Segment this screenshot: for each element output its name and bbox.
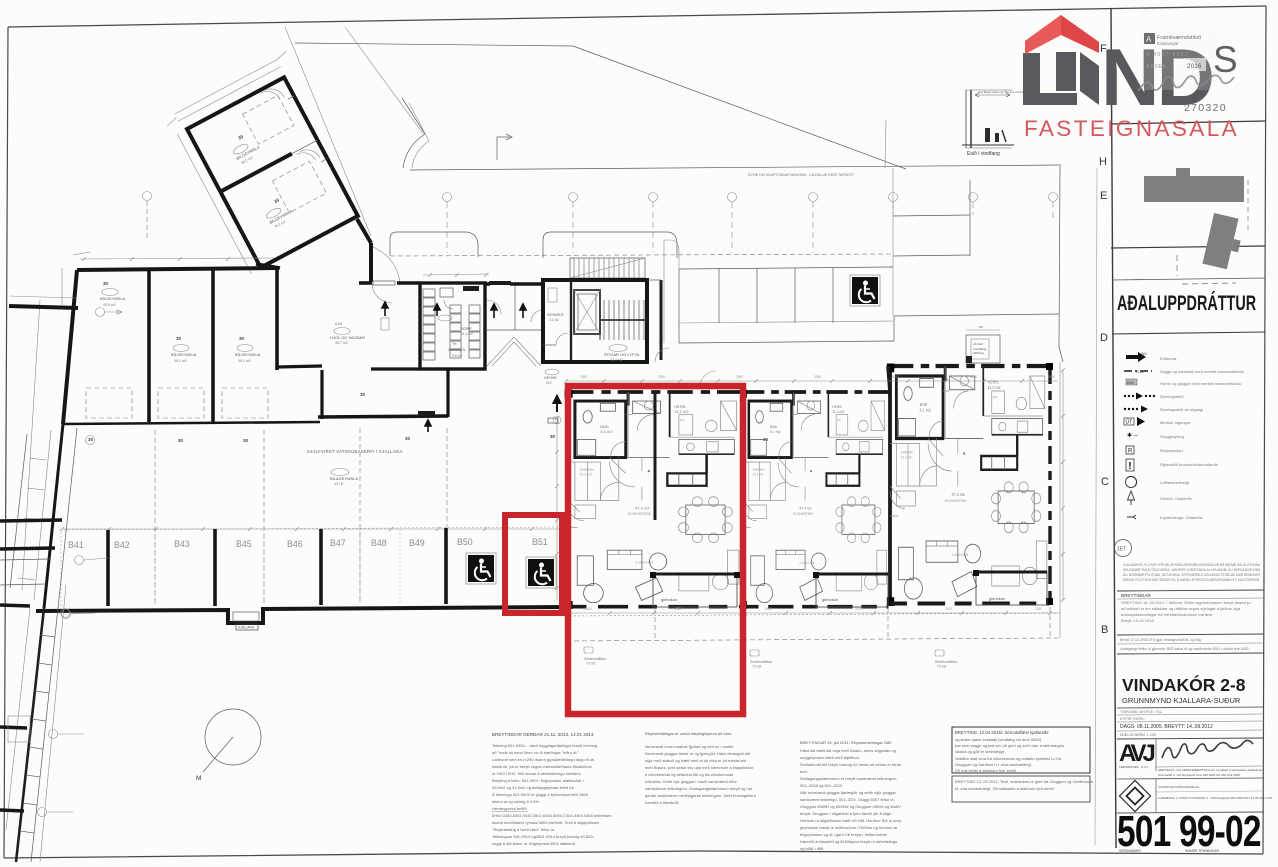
svg-text:samkvæmt teikningu. 501–320í.: samkvæmt teikningu. 501–320í. Gluggi 600… [800, 797, 895, 802]
svg-text:breytt. Gluggum í stigahlúsi á: breytt. Gluggum í stigahlúsi á fyrtu hæð… [800, 811, 892, 816]
svg-text:þar sem veggir og þak eru úð g: þar sem veggir og þak eru úð gleri og sv… [955, 743, 1065, 748]
svg-text:75 m2: 75 m2 [937, 665, 947, 669]
svg-text:270320: 270320 [1184, 102, 1227, 114]
svg-text:burt.: burt. [800, 769, 808, 774]
svg-text:BÍLAGEYMSLA: BÍLAGEYMSLA [330, 476, 358, 481]
svg-text:Veggir og hæðaskil með merktri: Veggir og hæðaskil með merktri brunamóts… [1160, 369, 1244, 374]
svg-text:að "undir uti kemi 2mm vír í8: að "undir uti kemi 2mm vír í8 hæðingar "… [492, 750, 580, 755]
svg-text:geymslum breytt úr stöltúurðum: geymslum breytt úr stöltúurðum í ÍSnfður… [800, 825, 898, 830]
svg-text:2590: 2590 [580, 375, 587, 379]
svg-text:E: E [1100, 190, 1107, 202]
svg-text:30: 30 [550, 434, 556, 439]
svg-text:Sérafnotaflötur: Sérafnotaflötur [750, 660, 773, 664]
svg-text:HELGAVARP RAUS ÓKLE MÚRA, VANT: HELGAVARP RAUS ÓKLE MÚRA, VANTERS VORSTU… [1123, 567, 1261, 572]
svg-text:Undirganga fellur úr gjónverk: Undirganga fellur úr gjónverk 0002 áskar… [1120, 646, 1249, 651]
svg-text:Gluggum og Garðhús h.f. eða sa: Gluggum og Garðhús h.f. eða sambærilegt. [955, 762, 1032, 767]
svg-text:30: 30 [243, 438, 249, 443]
svg-text:B51: B51 [532, 537, 548, 547]
svg-text:30: 30 [176, 336, 182, 341]
svg-text:Reynsteðalingar er varða hæpin: Reynsteðalingar er varða hæpinghlýsum að… [645, 731, 732, 736]
svg-text:og td56 í ít88.: og td56 í ít88. [800, 846, 824, 851]
svg-text:Rýmingarleið.: Rýmingarleið. [1160, 394, 1184, 399]
svg-text:4 6 FEB: 4 6 FEB [1146, 64, 1166, 70]
svg-text:BÍLGEYMSLA: BÍLGEYMSLA [235, 352, 261, 357]
svg-text:B41: B41 [68, 540, 84, 550]
svg-text:gerður samkvæmt meðfylgjandi t: gerður samkvæmt meðfylgjandi teikningum.… [645, 793, 757, 798]
svg-text:Reykskynjari.: Reykskynjari. [1160, 448, 1184, 453]
svg-text:Gluggum 60ð5H og 60ð5W og Glug: Gluggum 60ð5H og 60ð5W og Gluggum 050ð4 … [800, 804, 901, 809]
svg-text:veggi á í68 teknir út. Bílgeym: veggi á í68 teknir út. Bílgeymsla 0004 s… [492, 841, 576, 846]
svg-text:BÍLGEYMSLA: BÍLGEYMSLA [171, 352, 197, 357]
svg-text:Teikning 501-9900----ítarð byg: Teikning 501-9900----ítarð byggingarfjár… [492, 743, 597, 748]
svg-text:43 LR: 43 LR [334, 482, 344, 486]
svg-text:handrið á tilsettuðli.: handrið á tilsettuðli. [645, 800, 679, 805]
svg-text:EI-60: EI-60 [1136, 370, 1144, 374]
svg-text:23.4 m2: 23.4 m2 [610, 358, 623, 362]
svg-text:1ET: 1ET [1117, 547, 1126, 553]
svg-text:5400: 5400 [765, 607, 772, 611]
svg-text:2590: 2590 [736, 375, 743, 379]
svg-text:MÆLIKVARÐI 1:100: MÆLIKVARÐI 1:100 [1120, 732, 1157, 737]
svg-text:BREYTINGAR GERÐAR 21.11. 2013,: BREYTINGAR GERÐAR 21.11. 2013, 14.01 201… [492, 732, 594, 737]
svg-text:BREYTING: 12.04 2015í: Sérnota: BREYTING: 12.04 2015í: Sérnotaflætir kja… [955, 730, 1050, 735]
svg-text:45.8 m2: 45.8 m2 [103, 303, 116, 307]
svg-text:GLF: GLF [546, 381, 552, 385]
svg-text:Öryggislýsing.: Öryggislýsing. [1160, 434, 1185, 439]
svg-text:3280: 3280 [1048, 375, 1055, 379]
svg-text:Teikningum 501-9913 og0501-991: Teikningum 501-9913 og0501-9914 breytt þ… [492, 834, 595, 839]
svg-text:Hersteypunni beðið:: Hersteypunni beðið: [492, 806, 528, 811]
svg-text:Merktur útgangur.: Merktur útgangur. [1160, 420, 1191, 425]
svg-text:B47: B47 [330, 538, 346, 548]
svg-text:3.1 m2: 3.1 m2 [549, 318, 559, 322]
svg-text:glerlokun: glerlokun [989, 596, 1005, 601]
svg-text:2410: 2410 [855, 607, 862, 611]
svg-text:VONISKOR ÞRÓUNARFÉLAG: VONISKOR ÞRÓUNARFÉLAG [1158, 784, 1200, 789]
svg-text:Esið í vindfang: Esið í vindfang [967, 150, 1000, 157]
svg-text:Eðlisinna.: Eðlisinna. [1160, 356, 1177, 361]
svg-text:D: D [1100, 332, 1108, 344]
svg-text:30: 30 [178, 438, 184, 443]
svg-text:F: F [1100, 43, 1107, 55]
svg-text:Þrýstunlengd. Úðakerfis: Þrýstunlengd. Úðakerfis [1160, 515, 1202, 520]
svg-text:Hólmaslóð 4. 101 Reykjavík: Hólmaslóð 4. 101 Reykjavík Sími 496 5281… [1158, 772, 1240, 777]
svg-text:AVJ: AVJ [1119, 740, 1155, 767]
svg-text:35.1 m2: 35.1 m2 [174, 359, 187, 363]
svg-text:M: M [196, 775, 201, 782]
svg-text:tekinn út og steinig 8 0.9%.: tekinn út og steinig 8 0.9%. [492, 799, 540, 804]
svg-text:B 4557-9962: B 4557-9962 [1146, 52, 1189, 58]
svg-text:B49: B49 [409, 538, 425, 548]
svg-text:2590: 2590 [658, 375, 665, 379]
svg-text:Breytt: 12.04 2015.: Breytt: 12.04 2015. [1121, 618, 1155, 623]
svg-text:ÞARABAKKI 3. SAMÞYKKTARMÁL 4 -: ÞARABAKKI 3. SAMÞYKKTARMÁL 4 - 109 Reykj… [1158, 796, 1272, 800]
svg-text:eðluslíks. Settir nýir glugga: eðluslíks. Settir nýir gluggar í húsið s… [645, 779, 737, 784]
svg-text:73 m2: 73 m2 [586, 662, 596, 666]
svg-text:ÚLI NOSEMAR PLOTUNA, SETJA SKA: ÚLI NOSEMAR PLOTUNA, SETJA SKAL SÓTFHÆRS… [1123, 572, 1260, 577]
svg-text:ARKITEKTA- OG VERKFRÆÐISTOFA e: ARKITEKTA- OG VERKFRÆÐISTOFA ehf. Lynghá… [1158, 767, 1262, 772]
svg-text:GRUNNMYND KJALLARA-SUÐUR: GRUNNMYND KJALLARA-SUÐUR [1122, 696, 1241, 705]
svg-text:Svölukendð tilð breytt Þannig: Svölukendð tilð breytt Þannig úð henta ú… [800, 762, 902, 767]
svg-text:5400: 5400 [585, 607, 592, 611]
svg-text:SORP: SORP [461, 327, 472, 331]
svg-text:BÍLGEYMSLA: BÍLGEYMSLA [100, 296, 126, 301]
svg-text:að teiknað er inn stálskáar og: að teiknað er inn stálskáar og útlitiðar… [1121, 606, 1241, 611]
svg-text:úr OK3 Í 0H2. 5ðli mónar 8 sér: úr OK3 Í 0H2. 5ðli mónar 8 sérstaklerngu… [492, 771, 582, 776]
svg-text:B50: B50 [457, 537, 473, 547]
svg-text:BREYTING 13. 03 2012: Texti,: BREYTING 13. 03 2012: Texti, svalalokun … [955, 779, 1094, 784]
svg-text:Hálst allt klætt allt núja með: Hálst allt klætt allt núja með Álraun, s… [800, 748, 896, 753]
svg-text:TH: TH [452, 342, 457, 346]
svg-text:BREYTINGAR: BREYTINGAR [1121, 593, 1152, 598]
svg-text:"Reykræsting á hvert hæð" fell: "Reykræsting á hvert hæð" fellur út. [492, 827, 555, 832]
svg-text:TEIKNAÐ: AH.FLE / GL: TEIKNAÐ: AH.FLE / GL [1120, 709, 1163, 714]
svg-text:+8 GLF: +8 GLF [973, 342, 983, 346]
svg-text:GREYTING 14. 09.2012: Í íbðúu: GREYTING 14. 09.2012: Í íbðúum, 305m og(… [1121, 600, 1252, 605]
svg-text:Hurðir og gluggar með merktri: Hurðir og gluggar með merktri brunamótst… [1160, 381, 1241, 386]
svg-text:35.1 m2: 35.1 m2 [238, 359, 251, 363]
svg-text:INN: INN [1141, 352, 1147, 356]
svg-text:Á teikningu 501-9902 er gluggi: Á teikningu 501-9902 er gluggi á Þjölver… [492, 792, 589, 797]
svg-text:nýja með stakuð og klætt með á: nýja með stakuð og klætt með ál úð blíta… [645, 758, 746, 763]
svg-text:30: 30 [88, 437, 94, 442]
svg-text:Úðstöð. Úðakerfis: Úðstöð. Úðakerfis [1160, 496, 1192, 501]
svg-text:43,9m2 og 41,9m2 og dekkjageym: 43,9m2 og 41,9m2 og dekkjageymsla ferlid… [492, 785, 575, 790]
svg-text:C: C [1101, 476, 1109, 488]
svg-text:B46: B46 [287, 539, 303, 549]
svg-text:TEIKNISTOFA: TEIKNISTOFA [1119, 765, 1138, 769]
svg-text:Skállinn skal vera frá viðurke: Skállinn skal vera frá viðurkenndu og vo… [955, 756, 1062, 761]
svg-text:geð Birgis hella og ÚB HÚ2 ver: geð Birgis hella og ÚB HÚ2 verða [978, 89, 1023, 94]
svg-text:GEYMS: GEYMS [544, 376, 557, 380]
svg-text:ásamt meððstærð rýmala 0803 br: ásamt meððstærð rýmala 0803 breðrétt. Te… [492, 820, 600, 825]
svg-text:glerlokun: glerlokun [822, 597, 838, 602]
svg-text:HJÓL OG VAGNAR: HJÓL OG VAGNAR [330, 335, 365, 340]
svg-text:Núverandi Þvorn stakult fjyrða: Núverandi Þvorn stakult fjyrðað og sett … [645, 744, 734, 749]
svg-text:AÐALUPPDRÁTTUR: AÐALUPPDRÁTTUR [1117, 290, 1256, 315]
svg-text:bústarplásverslingar frá Verkf: bústarplásverslingar frá Verkfræðíustofu… [1121, 612, 1213, 617]
svg-text:2410: 2410 [945, 607, 952, 611]
svg-text:B45: B45 [236, 539, 252, 549]
svg-text:DAGS: 08.11.2005. BREYTT: 14..: DAGS: 08.11.2005. BREYTT: 14..09.2012 [1120, 724, 1213, 730]
svg-text:2590: 2590 [675, 607, 682, 611]
svg-text:9.6 m2: 9.6 m2 [452, 354, 462, 358]
svg-text:6.63: 6.63 [335, 322, 342, 326]
svg-text:Breyting á teikn. 501-9901: bí: Breyting á teikn. 501-9901: bílgeymstur … [492, 778, 584, 783]
svg-text:Kópavogur: Kópavogur [1157, 41, 1179, 46]
svg-text:R: R [1128, 449, 1133, 455]
svg-text:KVÖÐ UM KAUPSTAÐAR AÐKOMA , LA: KVÖÐ UM KAUPSTAÐAR AÐKOMA , LAGNA UÐ DRÁ… [748, 173, 854, 177]
svg-text:A.V.J: A.V.J [1141, 765, 1148, 769]
svg-text:Sérafnotaflötur: Sérafnotaflötur [584, 657, 607, 661]
svg-text:ti viðurkennda og settuðún ti: ti viðurkennda og settuðún tilð og frá v… [645, 772, 734, 777]
svg-text:Sérafnotaflötur: Sérafnotaflötur [935, 660, 958, 664]
svg-text:5400: 5400 [892, 375, 899, 379]
svg-text:2200 kg: 2200 kg [973, 351, 984, 355]
svg-text:✱ ─: ✱ ─ [1127, 432, 1139, 439]
svg-text:Núverandi gluggar teknir úr og: Núverandi gluggar teknir úr og fjyrlegði… [645, 751, 751, 756]
svg-text:sorggeymslur klætt með álplötu: sorggeymslur klætt með álplötum. [800, 755, 860, 760]
svg-text:B42: B42 [114, 540, 130, 550]
svg-text:GEYMSLR: GEYMSLR [547, 313, 564, 317]
svg-text:samtykktum teikningum. Svalaga: samtykktum teikningum. Svalagangsklæðunu… [645, 786, 753, 791]
svg-text:FASTEIGNASALA: FASTEIGNASALA [1024, 116, 1239, 141]
svg-text:!: ! [1128, 461, 1131, 472]
svg-text:KJALLARA: KJALLARA [238, 626, 255, 630]
svg-text:73 m2: 73 m2 [752, 665, 762, 669]
svg-text:Loftræsiherbergi.: Loftræsiherbergi. [1160, 480, 1190, 485]
svg-text:BREYTINGAR 15. júlí 2011: Reyn: BREYTINGAR 15. júlí 2011: Reynslumeining… [800, 740, 892, 745]
svg-text:bílgeymslum og út í garð Ú6 br: bílgeymslum og út í garð Ú6 breytt í íte… [800, 832, 888, 837]
svg-text:B: B [1101, 624, 1108, 636]
svg-text:Stjórnstöð brunaviðvörunarkerf: Stjórnstöð brunaviðvörunarkerfis. [1160, 462, 1219, 467]
svg-text:3280: 3280 [970, 375, 977, 379]
svg-text:30: 30 [360, 392, 366, 397]
svg-text:Lóðborar sem eru ±250 ítsarnt: Lóðborar sem eru ±250 ítsarnt gípsklæðih… [492, 757, 594, 762]
svg-text:21.4 m2: 21.4 m2 [461, 332, 473, 336]
svg-text:VAGNHJÓL: VAGNHJÓL [448, 347, 466, 352]
svg-text:Svölagangsklæðunum er breytt s: Svölagangsklæðunum er breytt samkvæmt te… [800, 776, 897, 781]
svg-text:3280: 3280 [1035, 607, 1042, 611]
svg-text:796: 796 [978, 325, 983, 329]
svg-text:3280: 3280 [814, 375, 821, 379]
svg-text:2016: 2016 [1187, 63, 1202, 70]
svg-text:EKKNA Í PLOTÚNYSSE SEÐUR FIL Á: EKKNA Í PLOTÚNYSSE SEÐUR FIL Á ÞANN LEYF… [1123, 578, 1260, 582]
svg-text:ÞÝFIR VERK:: ÞÝFIR VERK: [1120, 716, 1145, 721]
svg-text:með Brauni, sem settar eru upp: með Brauni, sem settar eru upp með klemm… [645, 765, 754, 770]
svg-text:S: S [1213, 39, 1238, 80]
svg-text:glerlokun: glerlokun [661, 597, 677, 602]
svg-text:NÚMER TEIKNINGAR: NÚMER TEIKNINGAR [1185, 848, 1220, 853]
svg-text:tð. eða sambærilegt. Öll málas: tð. eða sambærilegt. Öll málaskíla á sta… [955, 786, 1055, 791]
svg-text:sköklá og gölf er steinsteypt.: sköklá og gölf er steinsteypt. [955, 749, 1005, 754]
svg-text:Öll mál tekist á staðnum fyrir: Öll mál tekist á staðnum fyrir smíði. [955, 768, 1017, 773]
svg-text:B43: B43 [174, 539, 190, 549]
svg-text:30: 30 [239, 336, 245, 341]
svg-text:B48: B48 [371, 538, 387, 548]
svg-text:Hurðum úr stigahlúsum bætt við: Hurðum úr stigahlúsum bætt við HÍ8. Hurð… [800, 818, 903, 823]
svg-text:VERKNÚMER: VERKNÚMER [1119, 848, 1141, 853]
svg-text:SJÁLFVIRKT VATNSÚÐAKERFI Í KJA: SJÁLFVIRKT VATNSÚÐAKERFI Í KJALLARA. [307, 449, 404, 454]
svg-text:Handrið á bítustaði og 818ílöp: Handrið á bítustaði og 818ílöppur breytt… [800, 839, 897, 844]
svg-text:halda uti, þá er breytt vegna: halda uti, þá er breytt vegna vóbrauðlæð… [492, 764, 593, 769]
svg-text:0H02,0282,8302,0432,0502,810A,: 0H02,0282,8302,0432,0502,810A,8304,C304,… [492, 813, 612, 818]
svg-text:GJALDAHVOL PLOTUR YFIR BÍLGEYM: GJALDAHVOL PLOTUR YFIR BÍLGEYMSLURÖR BEL… [1123, 562, 1261, 567]
svg-text:Allir núverandi gluggar fjarlæ: Allir núverandi gluggar fjarlægðir og se… [800, 790, 896, 795]
svg-text:Rýmingarleið að útgangi: Rýmingarleið að útgangi [1160, 407, 1203, 412]
svg-text:98.7 m2: 98.7 m2 [335, 341, 348, 345]
svg-text:A: A [1146, 35, 1152, 44]
svg-text:ÚT: ÚT [1126, 419, 1133, 426]
svg-text:501–3208 og 501–3210: 501–3208 og 501–3210 [800, 783, 843, 788]
svg-text:EI60: EI60 [1127, 381, 1134, 385]
svg-text:30: 30 [763, 437, 769, 442]
svg-text:30: 30 [405, 436, 411, 441]
svg-text:VINDAKÓR 2-8: VINDAKÓR 2-8 [1122, 674, 1246, 695]
svg-text:Breytt 17.12.2003 LFG gjót, ei: Breytt 17.12.2003 LFG gjót, einangrunvöl… [1120, 638, 1202, 642]
svg-text:og settur opinn sóskáall (vind: og settur opinn sóskáall (vindfang við í… [955, 737, 1042, 742]
svg-text:STIGAR OG LYFTA: STIGAR OG LYFTA [604, 352, 640, 357]
svg-text:H: H [1099, 156, 1107, 168]
svg-text:30: 30 [103, 281, 109, 286]
